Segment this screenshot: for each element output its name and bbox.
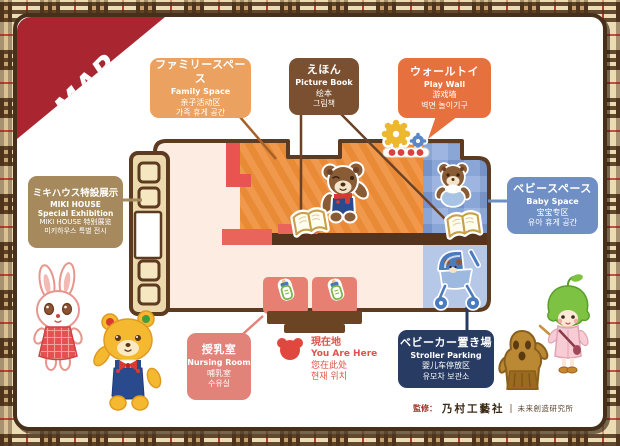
- haniwa-character: [498, 331, 550, 389]
- credit-separator: |: [510, 404, 513, 414]
- bear-head-icon: [276, 337, 304, 361]
- family-space-zh: 亲子活动区: [181, 98, 221, 108]
- salmon-bench-left: [222, 229, 272, 245]
- stroller-parking-ja: ベビーカー置き場: [400, 336, 492, 351]
- nursing-seats: [263, 277, 362, 333]
- exhibition-wall: [131, 153, 168, 314]
- baby-space-ja: ベビースペース: [513, 182, 592, 197]
- credit-company: 乃村工藝社: [442, 401, 505, 416]
- family-space-ko: 가족 휴게 공간: [176, 108, 225, 118]
- miki-exhibition-zh: MIKI HOUSE 特别展览: [40, 218, 112, 227]
- label-nursing-room: 授乳室 Nursing Room 哺乳室 수유실: [187, 333, 251, 400]
- bear-character: [91, 311, 163, 410]
- nursing-room-en: Nursing Room: [187, 358, 251, 368]
- label-picture-book: えほん Picture Book 绘本 그림책: [289, 58, 359, 115]
- nursing-room-ko: 수유실: [208, 379, 230, 389]
- label-play-wall: ウォールトイ Play Wall 游戏墙 벽면 놀이기구: [398, 58, 491, 118]
- book-icon: [293, 209, 326, 234]
- book-icon: [447, 212, 480, 236]
- you-are-here-en: You Are Here: [311, 349, 377, 361]
- picture-book-en: Picture Book: [295, 78, 352, 88]
- play-wall-ja: ウォールトイ: [410, 65, 479, 80]
- miki-exhibition-ko: 미키하우스 특별 전시: [44, 227, 106, 236]
- label-miki-exhibition: ミキハウス特設展示 MIKI HOUSE Special Exhibition …: [28, 176, 123, 248]
- miki-exhibition-en2: Special Exhibition: [38, 210, 114, 219]
- you-are-here-marker: 現在地 You Are Here 您在此处 현재 위치: [276, 337, 377, 384]
- you-are-here-zh: 您在此处: [311, 361, 377, 373]
- credit-prefix: 監修：: [413, 403, 437, 414]
- stroller-parking-ko: 유모차 보관소: [423, 372, 470, 382]
- play-wall-ko: 벽면 놀이기구: [421, 101, 468, 111]
- baby-space-ko: 유아 휴게 공간: [528, 218, 577, 228]
- callout-line-nursing: [243, 316, 263, 334]
- gear-toy-icon: [381, 119, 428, 151]
- nursing-room-zh: 哺乳室: [207, 369, 231, 379]
- stroller-parking-zh: 婴儿车停放区: [422, 361, 470, 371]
- you-are-here-ja: 現在地: [311, 337, 377, 349]
- bead-toy-icon: [383, 148, 429, 157]
- play-wall-zh: 游戏墙: [433, 90, 457, 100]
- label-stroller-parking: ベビーカー置き場 Stroller Parking 婴儿车停放区 유모차 보관소: [398, 330, 494, 388]
- callout-tail-walltoy: [428, 116, 458, 139]
- label-family-space: ファミリースペース Family Space 亲子活动区 가족 휴게 공간: [150, 58, 251, 118]
- picture-book-ja: えほん: [307, 63, 342, 78]
- you-are-here-ko: 현재 위치: [311, 372, 377, 384]
- nursing-room-ja: 授乳室: [202, 343, 237, 358]
- play-wall-en: Play Wall: [424, 80, 465, 90]
- bunny-character: [32, 262, 84, 370]
- baby-space-zh: 宝宝专区: [537, 208, 569, 218]
- credit: 監修： 乃村工藝社 | 未来創造研究所: [413, 401, 591, 416]
- family-space-ja: ファミリースペース: [150, 58, 251, 88]
- stroller-parking-en: Stroller Parking: [410, 351, 481, 361]
- family-space-en: Family Space: [171, 87, 230, 97]
- red-bench-foot: [226, 174, 251, 187]
- label-baby-space: ベビースペース Baby Space 宝宝专区 유아 휴게 공간: [507, 177, 598, 234]
- baby-space-en: Baby Space: [526, 197, 578, 207]
- map-signboard: MAP ファミリースペース Family Space 亲子活动区 가족 휴게 공…: [0, 0, 620, 446]
- picture-book-ko: 그림책: [313, 99, 335, 109]
- credit-institute: 未来創造研究所: [518, 403, 574, 414]
- picture-book-zh: 绘本: [316, 89, 332, 99]
